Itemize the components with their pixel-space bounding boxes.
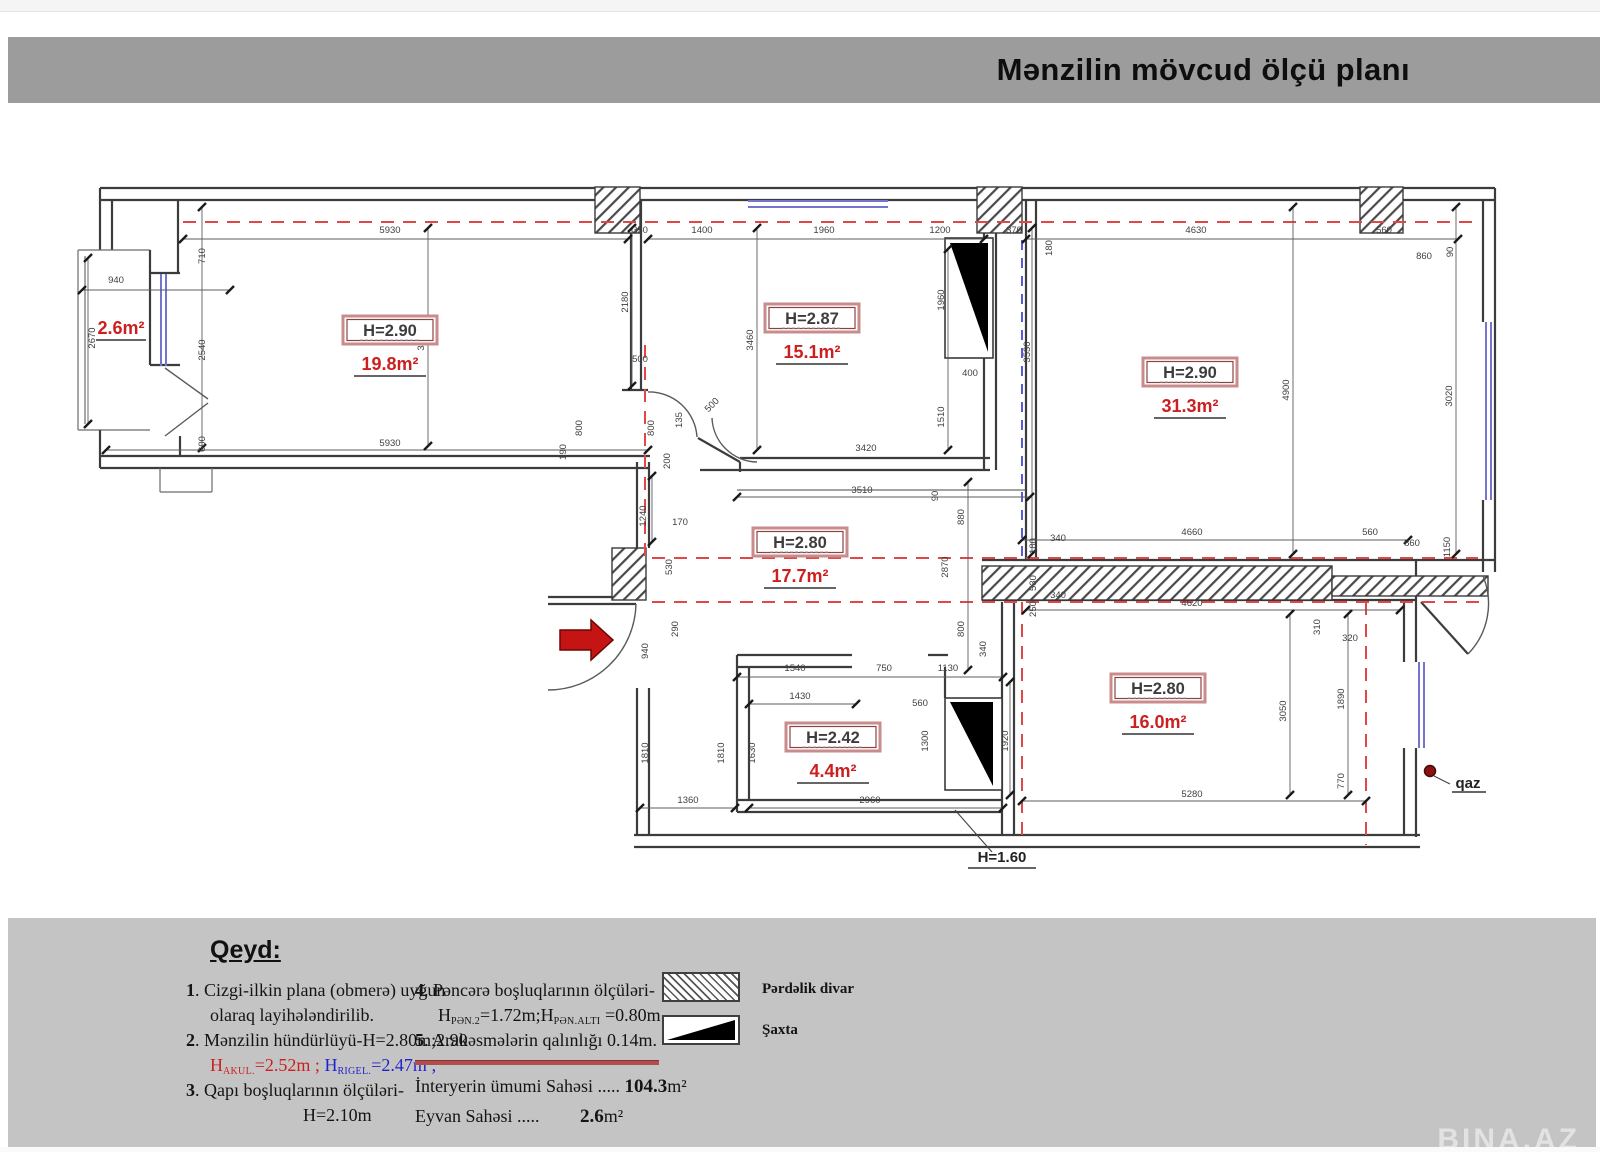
dimension-label: 1360 [677, 795, 698, 806]
dimension-label: 3460 [745, 329, 756, 350]
dimension-label: 1300 [920, 730, 931, 751]
page: Mənzilin mövcud ölçü planı [0, 0, 1600, 1152]
annotation-h160: H=1.60 [955, 810, 1036, 868]
dimension-label: 200 [662, 453, 673, 469]
dimension-label: 400 [962, 368, 978, 379]
dimension-label: 90 [930, 491, 941, 502]
annotation-qaz: qaz [1425, 766, 1487, 793]
dimension-label: 710 [197, 248, 208, 264]
dimension-label: 370 [1006, 225, 1022, 236]
dimension-label: 800 [956, 621, 967, 637]
dimension-label: 750 [876, 663, 892, 674]
dimension-label: 250 [1028, 601, 1039, 617]
room-height: H=2.90 [363, 322, 417, 340]
dimension-label: 560 [912, 698, 928, 709]
dimension-label: 1890 [1336, 688, 1347, 709]
dimension-label: 1920 [1000, 730, 1011, 751]
dimension-label: 4900 [1281, 379, 1292, 400]
dimension-label: 2870 [940, 556, 951, 577]
room-area: 31.3m² [1161, 396, 1218, 416]
dimension-label: 3510 [851, 485, 872, 496]
room-height: H=2.80 [773, 534, 827, 552]
dimension-label: 800 [646, 420, 657, 436]
dimension-label: 1630 [747, 742, 758, 763]
dimension-label: 190 [558, 444, 569, 460]
dimension-label: 3050 [1278, 700, 1289, 721]
dimension-label: 770 [1336, 773, 1347, 789]
dimension-chains [78, 203, 1462, 812]
dimension-label: 860 [1416, 251, 1432, 262]
note-3-cont: H=2.10m [303, 1105, 372, 1126]
note-4-heights: HPƏN.2=1.72m;HPƏN.ALTI =0.80m [438, 1005, 661, 1027]
dimension-label: 2180 [620, 291, 631, 312]
hatched-walls [595, 187, 1488, 600]
note-4: 4. Pəncərə boşluqlarının ölçüləri- [415, 980, 655, 1001]
dimension-label: 2540 [197, 339, 208, 360]
room-area: 15.1m² [783, 342, 840, 362]
svg-text:H=1.60: H=1.60 [978, 849, 1027, 866]
entry-arrow-icon [560, 620, 613, 660]
dimension-label: 3530 [1022, 341, 1033, 362]
divider-rule [415, 1060, 659, 1065]
note-2-heights: HAKUL.=2.52m ; HRIGEL.=2.47m ; [210, 1055, 436, 1077]
dimension-label: 5930 [379, 438, 400, 449]
dimension-label: 940 [640, 643, 651, 659]
balcony-label: 2.6m² [96, 318, 146, 340]
dimension-label: 1430 [789, 691, 810, 702]
room-area: 19.8m² [361, 354, 418, 374]
room-height: H=2.80 [1131, 680, 1185, 698]
dimension-label: 340 [1050, 533, 1066, 544]
room-area: 17.7m² [771, 566, 828, 586]
room-height: H=2.42 [806, 729, 860, 747]
dimension-label: 340 [1050, 590, 1066, 601]
svg-text:qaz: qaz [1455, 775, 1480, 792]
dimension-label: 4620 [1181, 598, 1202, 609]
dimension-label: 350 [632, 225, 648, 236]
dimension-label: 530 [1028, 575, 1039, 591]
dimension-label: 90 [1445, 247, 1456, 258]
dimension-label: 1810 [640, 742, 651, 763]
dimension-label: 310 [1312, 619, 1323, 635]
notes-heading: Qeyd: [210, 936, 281, 965]
dimension-label: 560 [1362, 527, 1378, 538]
note-1-cont: olaraq layihələndirilib. [210, 1005, 374, 1026]
dimension-label: 4630 [1185, 225, 1206, 236]
dimension-label: 1960 [813, 225, 834, 236]
dimension-label: 180 [1028, 538, 1039, 554]
room-height: H=2.87 [785, 310, 839, 328]
dimension-label: 340 [978, 641, 989, 657]
dimension-label: 1130 [938, 663, 958, 674]
dimension-label: 1150 [1442, 537, 1453, 557]
room-label-16-0: H=2.80 16.0m² [1111, 674, 1205, 734]
dimension-label: 1810 [716, 742, 727, 763]
total-balcony-area: Eyvan Sahəsi ..... 2.6m² [415, 1106, 665, 1128]
gas-point-icon [1425, 766, 1436, 777]
dimension-label: 880 [956, 509, 967, 525]
dimension-label: 170 [672, 517, 688, 528]
dimension-label: 530 [664, 559, 675, 575]
dimension-label: 940 [108, 275, 124, 286]
dimension-label: 290 [670, 621, 681, 637]
dimension-label: 2670 [87, 327, 98, 348]
room-label-4-4: H=2.42 4.4m² [786, 723, 880, 783]
dimension-label: 3420 [855, 443, 876, 454]
dimension-label: 560 [1376, 225, 1392, 236]
dimension-label: 180 [1044, 240, 1055, 256]
notes-panel: Qeyd: 1. Cizgi-ilkin plana (obmerə) uyğu… [8, 918, 1596, 1147]
dimension-label: 800 [574, 420, 585, 436]
page-bottom-margin [0, 1147, 1600, 1152]
dimension-label: 600 [197, 436, 208, 452]
shaft-swatch-icon [662, 1015, 740, 1045]
note-5: 5. Arakəsmələrin qalınlığı 0.14m. [415, 1030, 657, 1051]
dimension-label: 860 [1404, 538, 1420, 549]
room-label-15-1: H=2.87 15.1m² [765, 304, 859, 364]
dimension-label: 1960 [936, 289, 947, 310]
dimension-label: 4660 [1181, 527, 1202, 538]
dimension-label: 1200 [929, 225, 950, 236]
total-interior-area: İnteryerin ümumi Sahəsi ..... 104.3m² [415, 1076, 665, 1098]
note-3: 3. Qapı boşluqlarının ölçüləri- [186, 1080, 404, 1101]
dimension-label: 135 [674, 412, 685, 428]
dimension-label: 2960 [859, 795, 880, 806]
dimension-label: 5280 [1181, 789, 1202, 800]
door-arcs [548, 392, 1489, 690]
room-area: 4.4m² [809, 761, 856, 781]
dimension-label: 3020 [1444, 385, 1455, 406]
curtain-wall-label: Pərdəlik divar [762, 981, 854, 998]
dimension-label: 500 [703, 396, 722, 415]
dimension-label: 1540 [784, 663, 805, 674]
curtain-wall-swatch-icon [662, 972, 740, 1002]
note-1: 1. Cizgi-ilkin plana (obmerə) uyğun [186, 980, 445, 1001]
dimension-label: 320 [1342, 633, 1358, 644]
room-label-31-3: H=2.90 31.3m² [1143, 358, 1237, 418]
shaft-symbols [945, 238, 1002, 790]
room-area: 16.0m² [1129, 712, 1186, 732]
dimension-label: 1240 [638, 505, 649, 526]
shaft-label: Şaxta [762, 1022, 798, 1039]
dimension-label: 1400 [691, 225, 712, 236]
room-height: H=2.90 [1163, 364, 1217, 382]
dimension-label: 5930 [379, 225, 400, 236]
svg-text:2.6m²: 2.6m² [97, 318, 144, 338]
dimension-label: 1510 [936, 406, 947, 427]
dimension-label: 500 [632, 354, 648, 365]
